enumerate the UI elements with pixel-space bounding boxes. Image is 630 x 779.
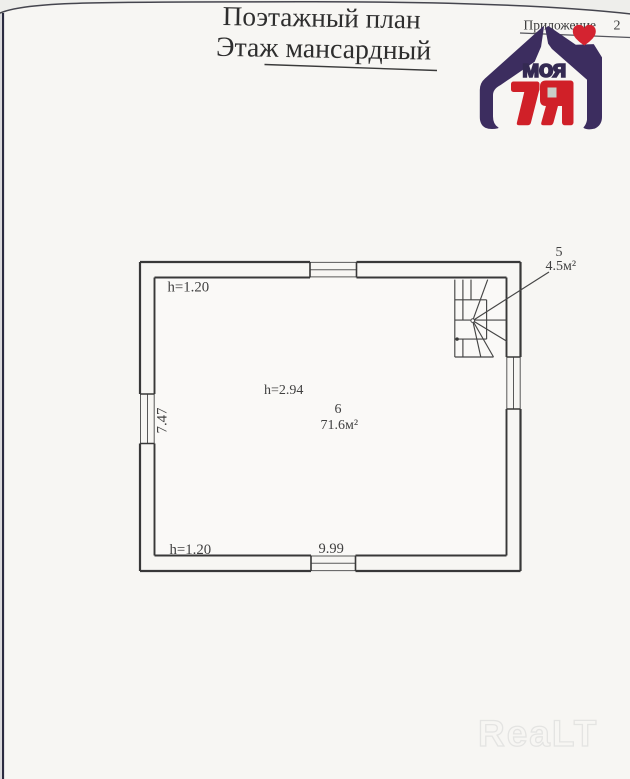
svg-text:7.47: 7.47 [155,408,171,434]
svg-text:2: 2 [614,19,621,34]
svg-text:моя: моя [522,56,566,83]
svg-text:Поэтажный план: Поэтажный план [222,1,420,34]
svg-text:9.99: 9.99 [319,541,344,557]
svg-text:4.5м²: 4.5м² [546,259,577,274]
svg-text:6: 6 [335,402,342,417]
svg-text:h=1.20: h=1.20 [170,542,212,558]
svg-text:71.6м²: 71.6м² [321,418,359,433]
svg-text:h=1.20: h=1.20 [168,280,210,296]
svg-text:ReaLT: ReaLT [478,713,598,754]
svg-text:Этаж мансардный: Этаж мансардный [216,32,432,67]
svg-text:5: 5 [556,245,563,260]
svg-text:h=2.94: h=2.94 [264,383,303,398]
